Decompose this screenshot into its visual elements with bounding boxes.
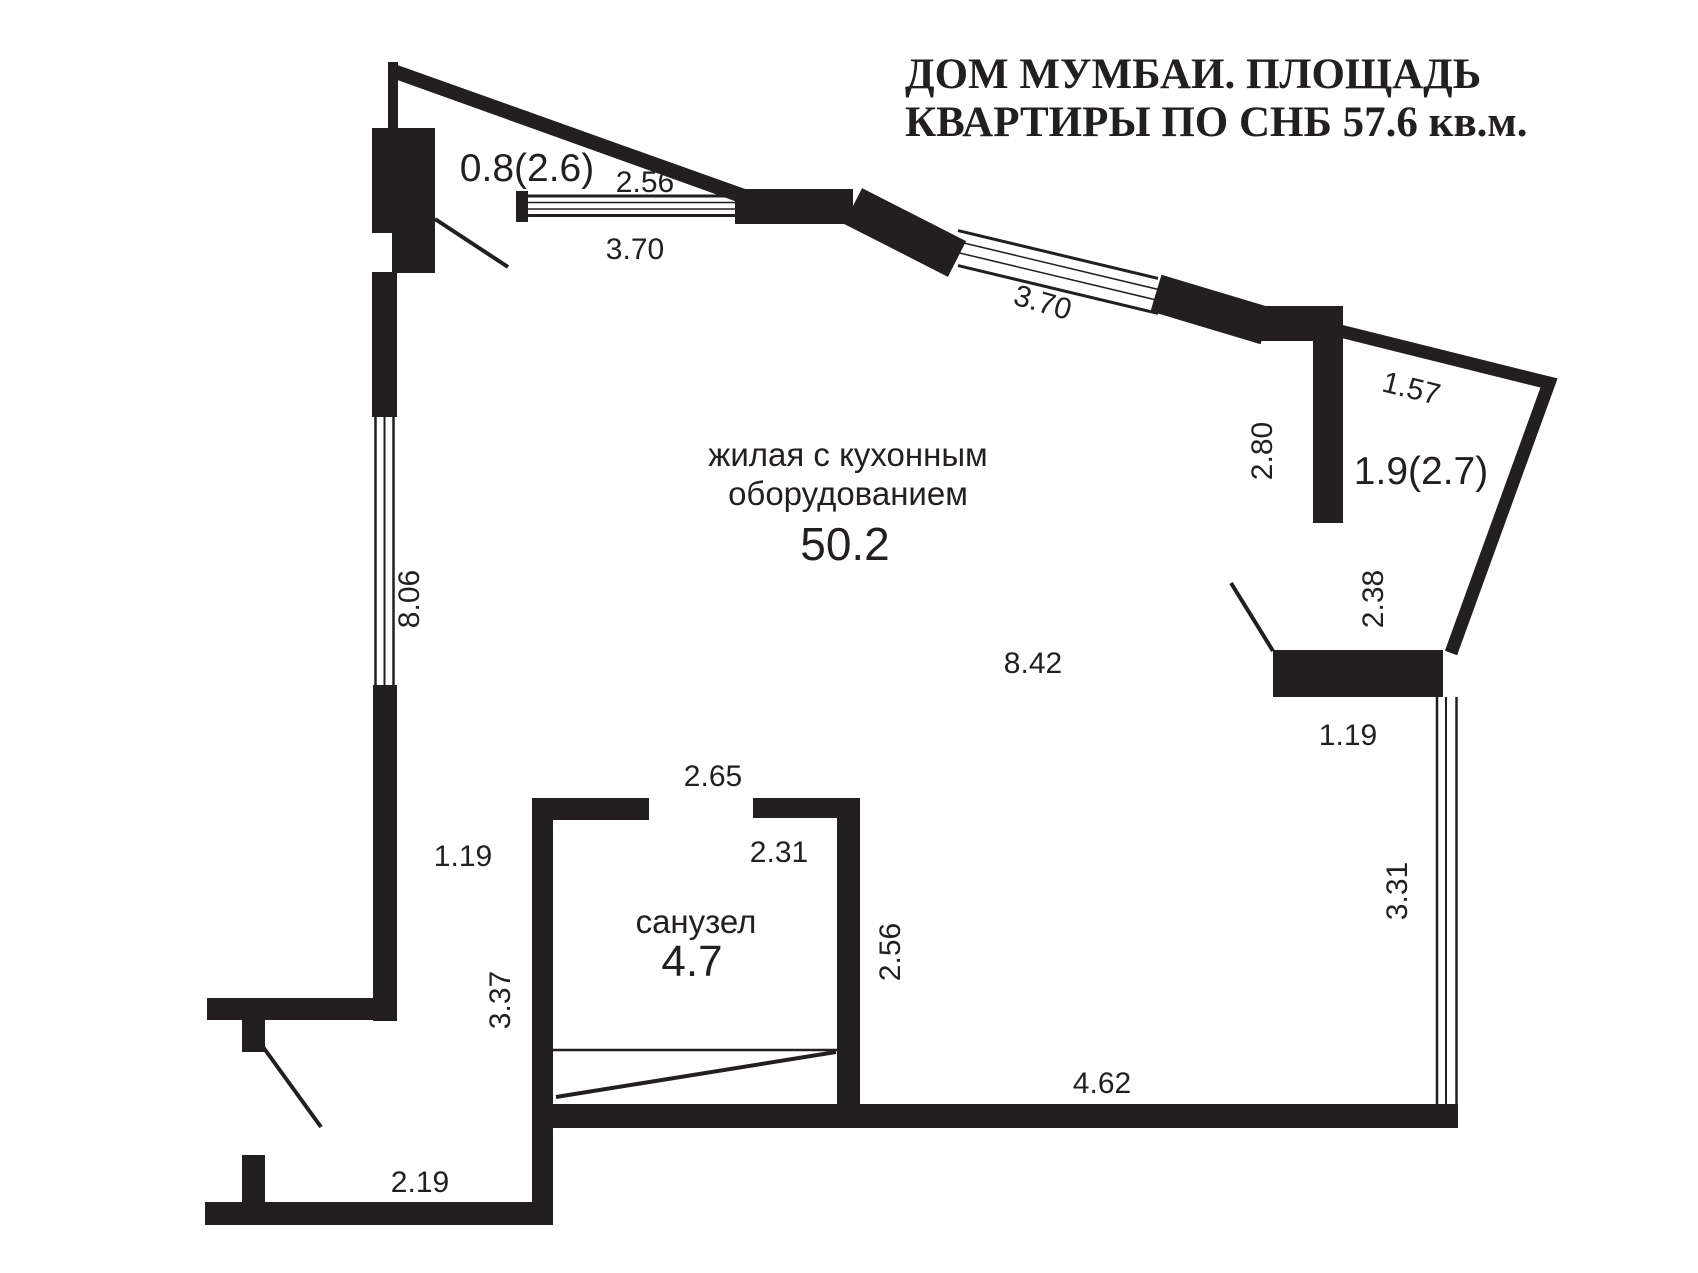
wall-bath-right <box>837 818 860 1104</box>
dim-right-upper: 1.57 <box>1379 366 1444 412</box>
wall-entry-horizontal <box>207 998 397 1020</box>
room-labels: жилая с кухонным оборудованием 50.2 сану… <box>460 147 1488 986</box>
wall-top-window-cap <box>516 191 528 222</box>
dim-diag-window: 3.70 <box>1010 279 1075 327</box>
dim-entry-width: 2.19 <box>391 1166 449 1199</box>
bathroom-area: 4.7 <box>661 937 722 986</box>
dim-entry-opening: 1.19 <box>434 840 492 873</box>
floor-plan-page: ДОМ МУМБАИ. ПЛОЩАДЬ КВАРТИРЫ ПО СНБ 57.6… <box>0 0 1698 1273</box>
wall-bath-top-left-seg <box>532 798 649 820</box>
wall-bath-left <box>532 798 553 1225</box>
wall-pillar-top-left <box>372 128 435 233</box>
dim-left-wall: 8.06 <box>393 570 426 628</box>
dim-living-width: 8.42 <box>1004 647 1062 680</box>
living-room-label-line2: оборудованием <box>728 475 968 512</box>
wall-right-vertical <box>1313 318 1343 523</box>
door-swing-balcony <box>1231 583 1273 651</box>
wall-angled-b <box>1156 293 1266 326</box>
bathroom-label: санузел <box>636 903 757 940</box>
living-room-label-line1: жилая с кухонным <box>708 436 987 473</box>
dim-top-window-inner: 2.56 <box>616 166 674 199</box>
door-swing-top-left <box>435 219 508 267</box>
dim-right-opening: 1.19 <box>1319 719 1377 752</box>
plan-title: ДОМ МУМБАИ. ПЛОЩАДЬ КВАРТИРЫ ПО СНБ 57.6… <box>905 51 1527 146</box>
wall-sub-pillar <box>392 233 435 273</box>
window-right <box>1437 697 1457 1104</box>
door-swing-entry <box>258 1040 321 1127</box>
title-line-2: КВАРТИРЫ ПО СНБ 57.6 кв.м. <box>905 99 1527 146</box>
dim-bath-top: 2.65 <box>684 760 742 793</box>
wall-bottom-left <box>205 1202 553 1225</box>
balcony-right-area: 1.9(2.7) <box>1354 450 1488 493</box>
wall-left-lower <box>373 685 397 1021</box>
wall-balcony-block <box>1273 650 1443 697</box>
door-swings <box>258 219 1273 1127</box>
wall-top-middle-block <box>735 189 853 224</box>
wall-bottom-right <box>553 1104 1458 1128</box>
wall-left-upper <box>372 272 397 417</box>
living-room-area: 50.2 <box>800 518 890 570</box>
title-line-1: ДОМ МУМБАИ. ПЛОЩАДЬ <box>905 51 1481 98</box>
dim-right-vertical: 2.80 <box>1246 422 1279 480</box>
wall-entry-stub-lower <box>242 1155 265 1205</box>
dim-balcony-right-width: 2.38 <box>1357 570 1390 628</box>
dim-bottom-wall: 4.62 <box>1073 1067 1131 1100</box>
floor-plan-canvas: ДОМ МУМБАИ. ПЛОЩАДЬ КВАРТИРЫ ПО СНБ 57.6… <box>0 0 1698 1273</box>
wall-bath-top-right-seg <box>753 798 860 818</box>
dim-bath-inner-height: 2.56 <box>874 923 907 981</box>
dim-top-window-outer: 3.70 <box>606 233 664 266</box>
dim-bath-inner-width: 2.31 <box>750 836 808 869</box>
window-left <box>376 417 394 685</box>
dim-right-window: 3.31 <box>1381 862 1414 920</box>
wall-angled-a <box>853 206 957 259</box>
balcony-top-area: 0.8(2.6) <box>460 147 594 190</box>
bath-closet-diagonal <box>556 1052 836 1097</box>
angled-walls <box>853 206 1549 653</box>
dim-bath-left-height: 3.37 <box>484 971 517 1029</box>
